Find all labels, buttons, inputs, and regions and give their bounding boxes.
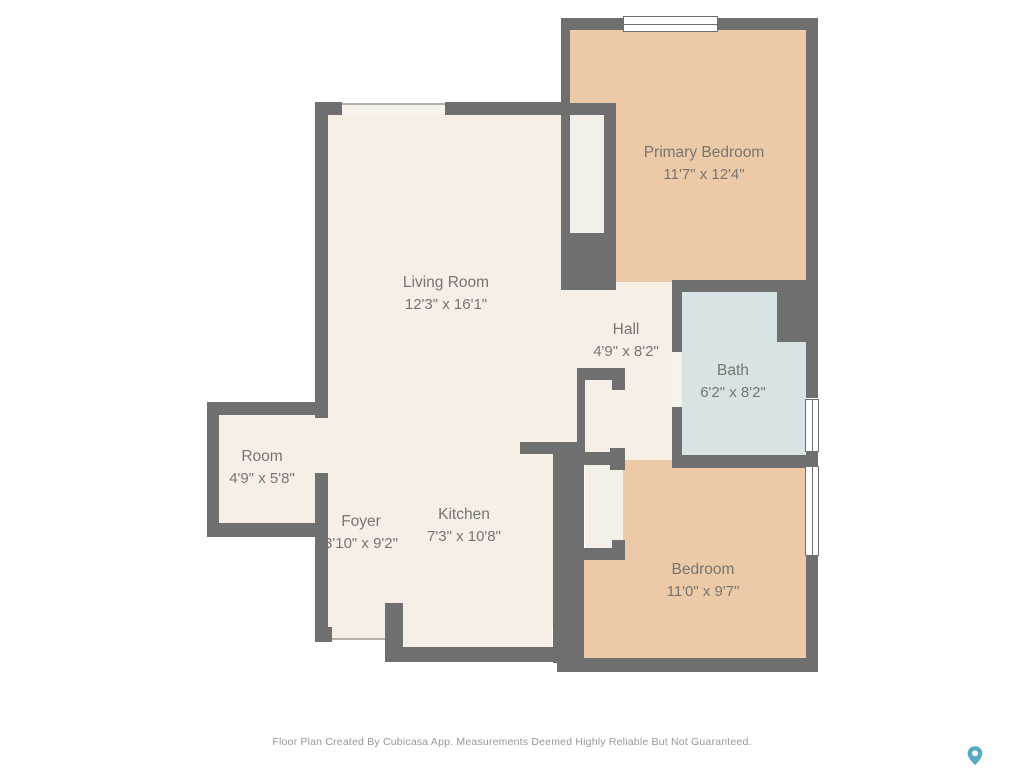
wall xyxy=(612,378,625,390)
room-label-bedroom: Bedroom11'0" x 9'7" xyxy=(667,559,740,603)
room-label-bath: Bath6'2" x 8'2" xyxy=(700,360,766,404)
bedroom-closet-floor xyxy=(585,465,623,548)
room-label-kitchen: Kitchen7'3" x 10'8" xyxy=(427,504,501,548)
wall xyxy=(806,18,818,398)
wall xyxy=(207,402,219,537)
floor-plan: Primary Bedroom11'7" x 12'4" Living Room… xyxy=(0,0,1024,768)
wall xyxy=(604,103,616,233)
wall xyxy=(577,368,585,455)
wall xyxy=(315,473,328,642)
wall xyxy=(553,442,584,663)
room-door-opening xyxy=(315,418,328,473)
primary-bedroom-floor xyxy=(570,30,806,103)
wall xyxy=(445,102,570,115)
wall xyxy=(806,555,818,672)
room-label-foyer: Foyer3'10" x 9'2" xyxy=(324,511,398,555)
wall xyxy=(385,647,577,662)
wall xyxy=(612,540,625,548)
wall xyxy=(561,233,616,290)
window xyxy=(805,466,819,556)
bath-door-opening xyxy=(672,352,682,407)
room-label-room: Room4'9" x 5'8" xyxy=(229,446,295,490)
map-pin-icon xyxy=(966,745,984,766)
wall xyxy=(315,102,328,418)
wall xyxy=(672,455,818,468)
bedroom-floor xyxy=(583,560,623,658)
room-label-primary-bedroom: Primary Bedroom11'7" x 12'4" xyxy=(644,142,765,186)
wall xyxy=(557,658,818,672)
window xyxy=(623,16,718,32)
room-label-hall: Hall4'9" x 8'2" xyxy=(593,319,659,363)
primary-bedroom-floor xyxy=(616,103,806,282)
kitchen-floor xyxy=(403,603,552,647)
window xyxy=(805,399,819,452)
wall xyxy=(207,523,315,537)
balcony-opening xyxy=(340,103,445,115)
primary-closet-floor xyxy=(570,115,604,233)
wall xyxy=(582,548,625,560)
wall xyxy=(777,288,806,342)
wall xyxy=(385,603,403,647)
wall xyxy=(520,442,555,454)
wall xyxy=(672,292,682,352)
wall xyxy=(672,407,682,457)
bath-floor xyxy=(682,292,777,342)
room-label-living-room: Living Room12'3" x 16'1" xyxy=(403,272,489,316)
wall xyxy=(315,627,332,642)
disclaimer-text: Floor Plan Created By Cubicasa App. Meas… xyxy=(0,736,1024,748)
wall xyxy=(610,448,625,470)
entry-opening xyxy=(328,627,385,640)
wall xyxy=(207,402,315,415)
